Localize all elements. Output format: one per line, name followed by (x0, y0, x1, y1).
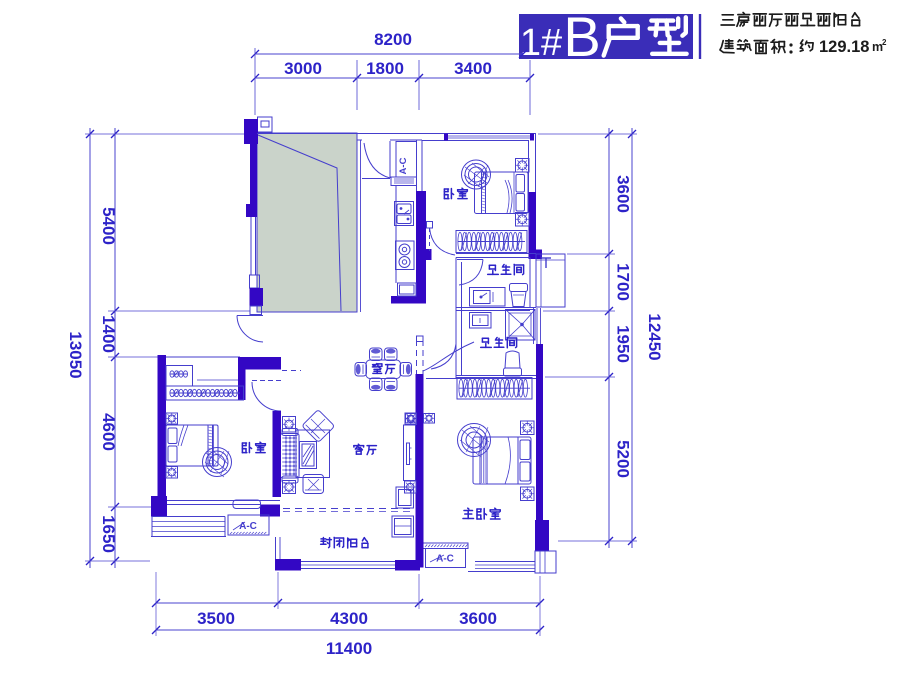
svg-text:1650: 1650 (99, 515, 118, 553)
svg-text:4600: 4600 (99, 413, 118, 451)
svg-text:11400: 11400 (326, 639, 372, 658)
svg-text:13050: 13050 (66, 331, 85, 378)
svg-text:8200: 8200 (374, 30, 412, 49)
svg-text:12450: 12450 (645, 313, 664, 360)
svg-text:A-C: A-C (239, 521, 257, 532)
svg-text:A-C: A-C (436, 554, 454, 565)
svg-text:3500: 3500 (197, 609, 235, 628)
svg-text:1800: 1800 (366, 59, 404, 78)
svg-text:3400: 3400 (454, 59, 492, 78)
svg-text:3600: 3600 (614, 175, 633, 213)
svg-text:129.18: 129.18 (819, 38, 869, 56)
svg-text:1400: 1400 (99, 315, 118, 353)
svg-text:5400: 5400 (99, 207, 118, 245)
svg-text:1950: 1950 (614, 325, 633, 363)
svg-text:5200: 5200 (614, 440, 633, 478)
svg-text:A-C: A-C (398, 157, 409, 174)
svg-text:3000: 3000 (284, 59, 322, 78)
svg-text:B: B (563, 5, 600, 68)
svg-text:3600: 3600 (459, 609, 497, 628)
svg-text:1#: 1# (520, 22, 562, 64)
svg-text:4300: 4300 (330, 609, 368, 628)
svg-text:1700: 1700 (614, 263, 633, 301)
svg-text:2: 2 (882, 38, 887, 47)
